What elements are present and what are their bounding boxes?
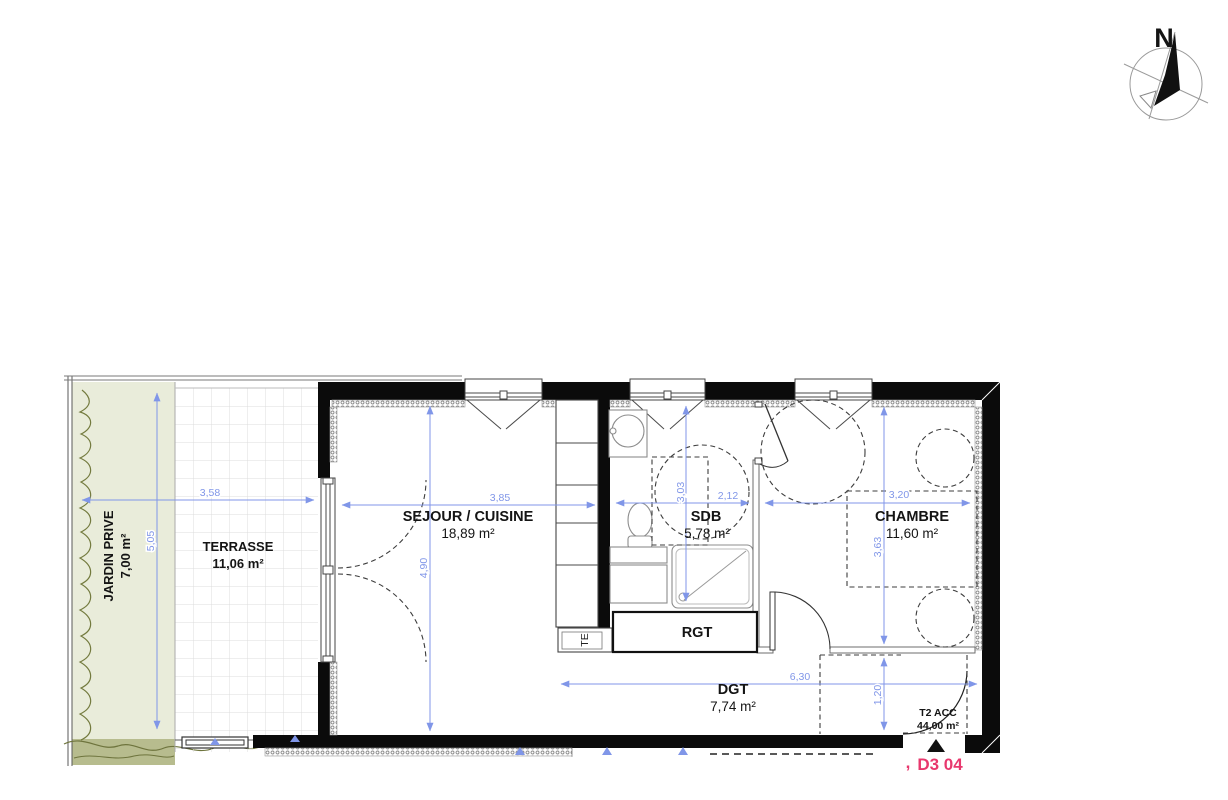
dimension-label: 6,30 bbox=[790, 671, 811, 683]
room-label-rgt: RGT bbox=[682, 625, 713, 641]
te-label: TE bbox=[579, 633, 591, 646]
lot-number: D3 04 bbox=[917, 755, 963, 774]
door-swing bbox=[760, 461, 788, 467]
floor-plan: TE bbox=[0, 0, 1228, 800]
french-door bbox=[321, 478, 426, 662]
dimension-label: 3,20 bbox=[889, 489, 910, 501]
dimension-label: 3,63 bbox=[872, 537, 884, 558]
toilet-icon bbox=[628, 503, 652, 537]
washer-box bbox=[610, 547, 667, 563]
north-label: N bbox=[1154, 23, 1174, 53]
kitchen-counter bbox=[556, 400, 598, 627]
dimension-label: 3,85 bbox=[490, 492, 511, 504]
partition-walls bbox=[753, 402, 975, 653]
dimension-label: 4,90 bbox=[418, 558, 430, 579]
unit-info: T2 ACC 44,00 m² D3 04 , bbox=[906, 707, 964, 774]
lot-leader-mark: , bbox=[906, 753, 911, 772]
room-area-jardin: 7,00 m² bbox=[118, 533, 133, 578]
room-area-chambre: 11,60 m² bbox=[886, 526, 939, 541]
shower-icon bbox=[672, 545, 753, 608]
dimension-label: 3,03 bbox=[675, 482, 687, 503]
entrance-arrow-icon bbox=[927, 739, 945, 752]
unit-area-label: 44,00 m² bbox=[917, 720, 960, 732]
bedroom-door bbox=[770, 592, 830, 650]
room-area-terrasse: 11,06 m² bbox=[212, 556, 264, 571]
room-area-sdb: 5,78 m² bbox=[684, 526, 730, 541]
dimension-label: 2,12 bbox=[718, 490, 739, 502]
compass-icon: N bbox=[1124, 23, 1208, 120]
turning-circle bbox=[916, 589, 974, 647]
dimension-label: 1,20 bbox=[872, 685, 884, 706]
turning-circle bbox=[916, 429, 974, 487]
room-label-terrasse: TERRASSE bbox=[203, 539, 274, 554]
room-area-sejour: 18,89 m² bbox=[441, 526, 495, 541]
door-swing bbox=[338, 574, 426, 662]
dimension-label: 5,05 bbox=[145, 531, 157, 552]
interior-wall-kitchen bbox=[598, 400, 610, 640]
dimension-label: 3,58 bbox=[200, 487, 221, 499]
room-area-dgt: 7,74 m² bbox=[710, 699, 756, 714]
basin-icon bbox=[612, 415, 644, 447]
room-label-sdb: SDB bbox=[691, 509, 722, 525]
room-label-sejour: SEJOUR / CUISINE bbox=[403, 509, 534, 525]
bathroom-fixtures bbox=[609, 410, 753, 608]
door-swing bbox=[775, 592, 830, 649]
room-label-jardin: JARDIN PRIVE bbox=[101, 510, 116, 601]
electrical-box: TE bbox=[558, 628, 612, 652]
room-label-dgt: DGT bbox=[718, 682, 749, 698]
room-label-chambre: CHAMBRE bbox=[875, 509, 949, 525]
washer-box bbox=[610, 565, 667, 603]
unit-type-label: T2 ACC bbox=[919, 707, 957, 719]
turning-circle bbox=[761, 400, 865, 504]
window bbox=[465, 379, 542, 429]
